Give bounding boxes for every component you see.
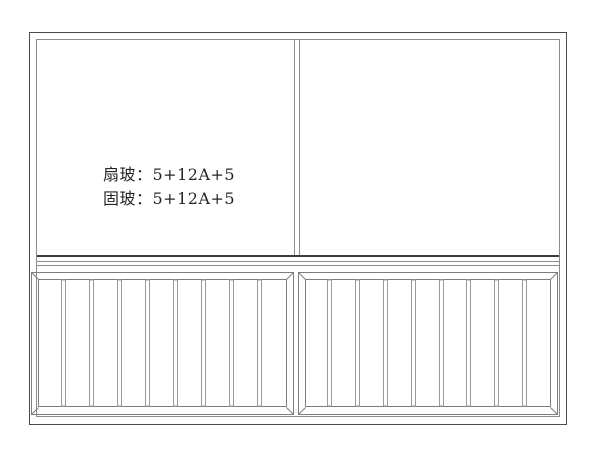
grille-bar [467,280,471,406]
lower-right-grille-panel [299,273,558,415]
panel-inner-edge [306,280,551,407]
grille-bar [202,280,206,406]
grille-bar [174,280,178,406]
grille-bar [62,280,66,406]
lower-left-grille-panel [32,273,294,415]
miter-joints [299,273,558,415]
grille-bars-right [328,280,527,406]
glass-spec-line-2: 固玻：5+12A+5 [103,187,235,211]
grille-bars-left [62,280,262,406]
grille-bar [118,280,122,406]
grille-bar [328,280,332,406]
glass-spec-line-1: 扇玻：5+12A+5 [103,163,235,187]
panel-inner-edge [39,280,287,407]
grille-bar [258,280,262,406]
grille-bar [495,280,499,406]
grille-bar [412,280,416,406]
upper-center-mullion [295,40,300,255]
grille-bar [90,280,94,406]
miter-joints [32,273,294,415]
glass-spec-annotation: 扇玻：5+12A+5 固玻：5+12A+5 [103,163,235,211]
panel-outer-edge [299,273,558,415]
grille-bar [523,280,527,406]
transom-bar [37,256,559,266]
grille-bar [230,280,234,406]
grille-bar [146,280,150,406]
grille-bar [356,280,360,406]
grille-bar [384,280,388,406]
grille-bar [440,280,444,406]
panel-outer-edge [32,273,294,415]
window-elevation-drawing [0,0,600,450]
cad-drawing-canvas: 扇玻：5+12A+5 固玻：5+12A+5 [0,0,600,450]
